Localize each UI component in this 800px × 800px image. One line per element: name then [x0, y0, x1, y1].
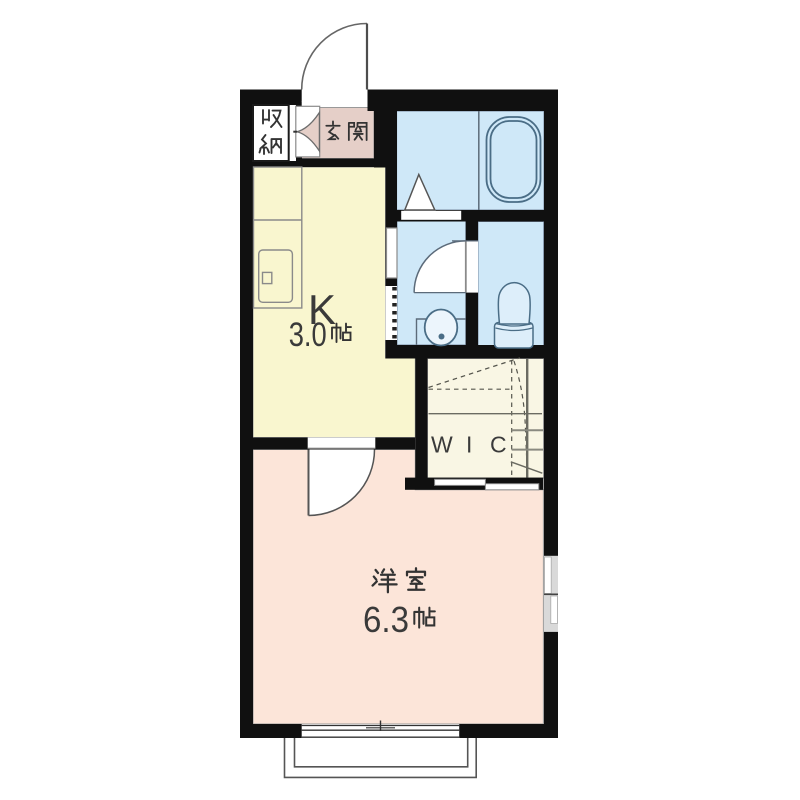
svg-text:3.0: 3.0: [289, 316, 327, 354]
svg-text:W: W: [431, 432, 453, 458]
svg-text:C: C: [490, 432, 507, 458]
svg-text:I: I: [466, 432, 472, 458]
svg-text:6.3: 6.3: [363, 599, 409, 640]
